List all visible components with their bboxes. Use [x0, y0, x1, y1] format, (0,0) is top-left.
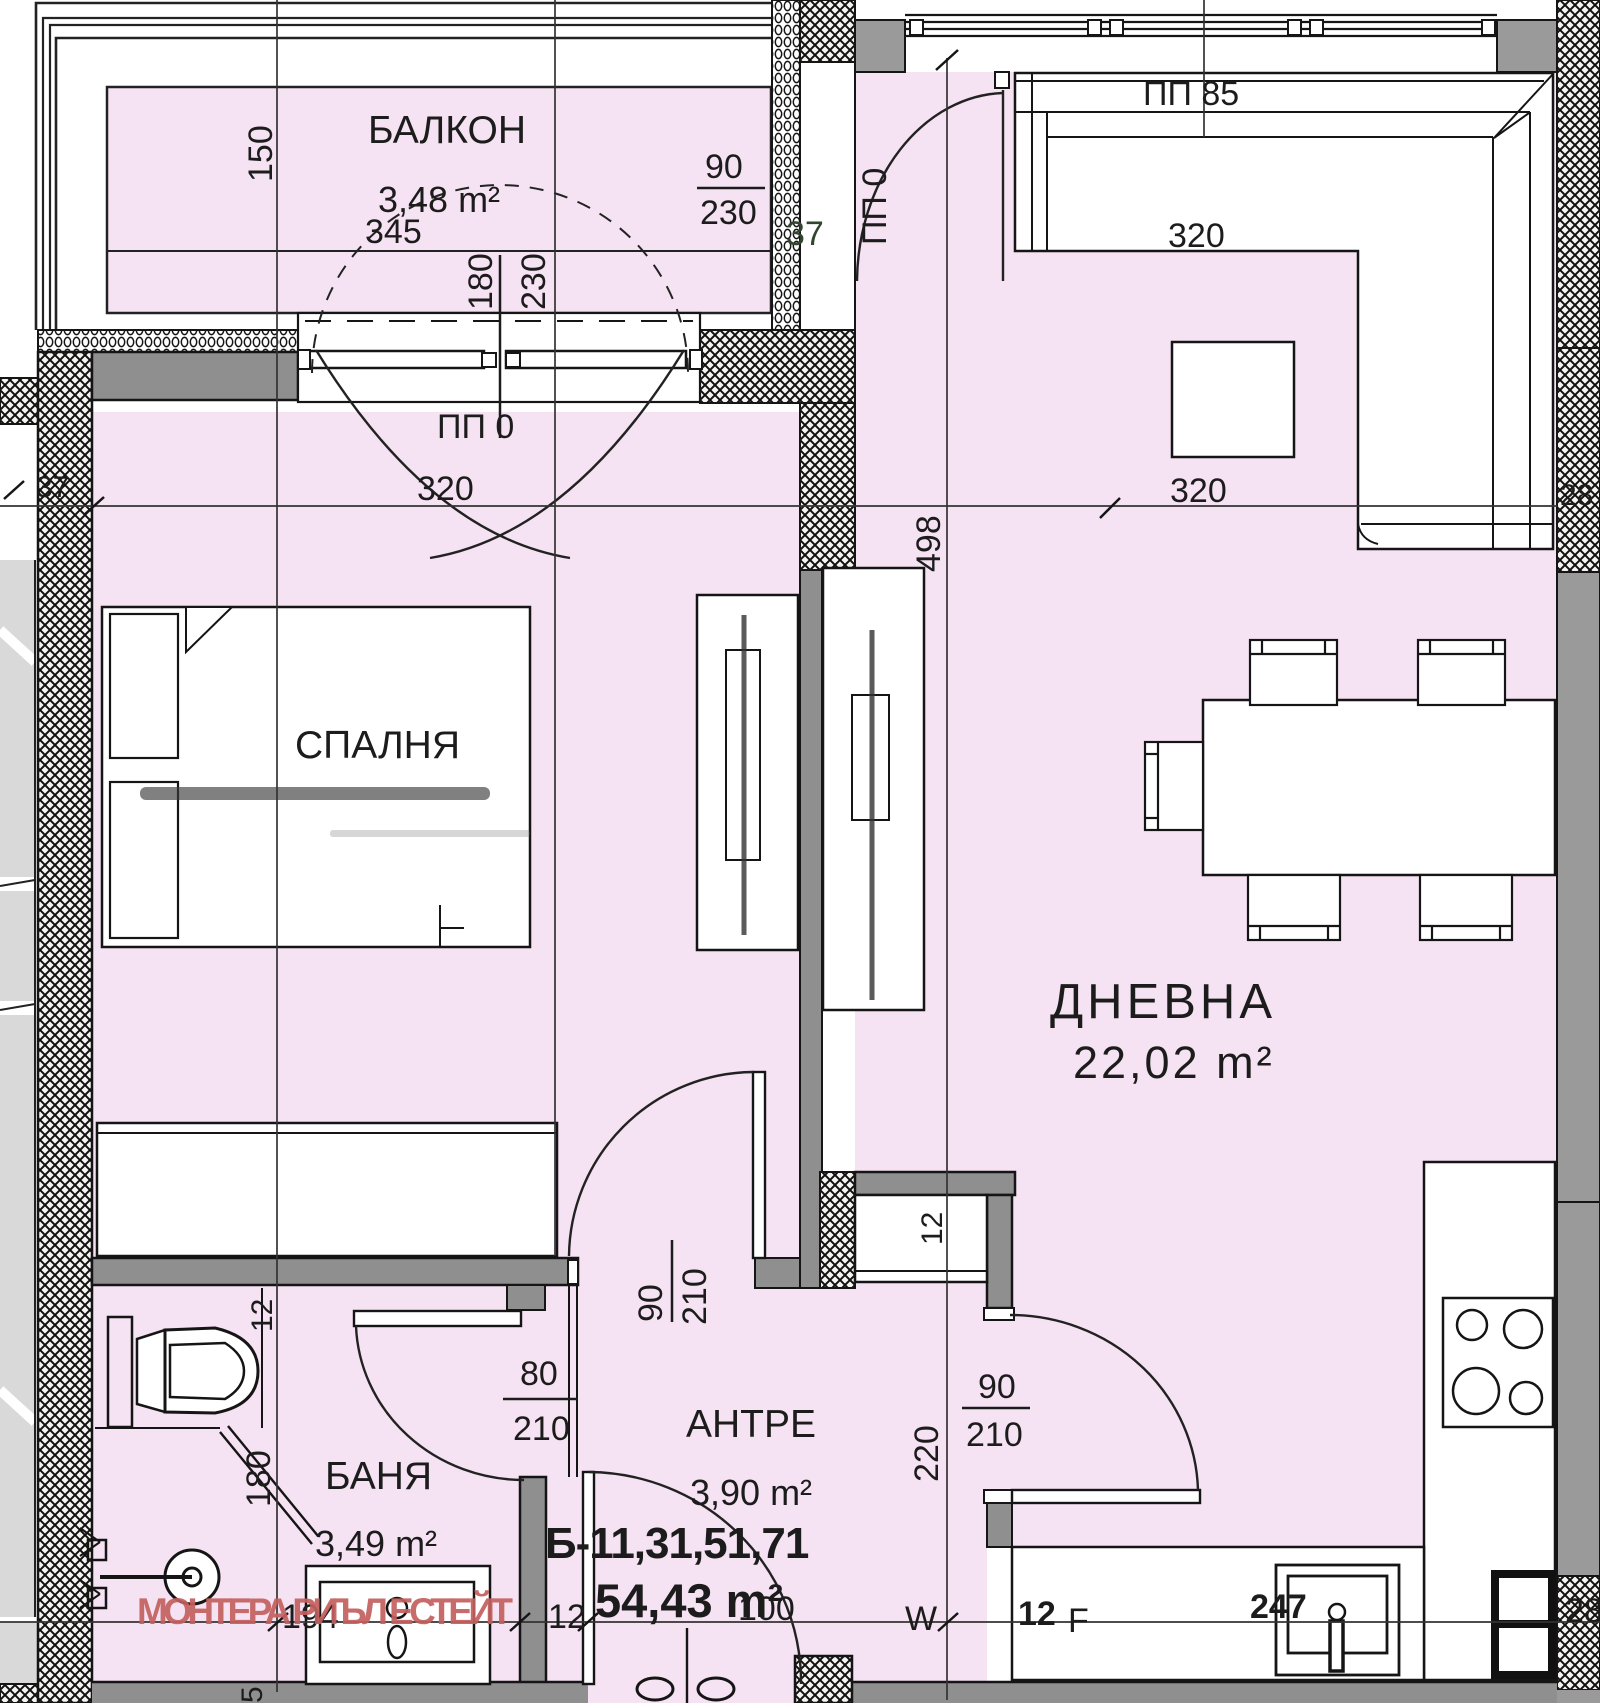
svg-text:90: 90 — [978, 1368, 1016, 1406]
svg-text:220: 220 — [908, 1425, 946, 1482]
svg-text:230: 230 — [700, 194, 757, 232]
svg-text:100: 100 — [738, 1590, 795, 1628]
svg-text:80: 80 — [520, 1355, 558, 1393]
svg-text:ПП 85: ПП 85 — [1143, 75, 1239, 113]
svg-text:210: 210 — [513, 1410, 570, 1448]
svg-text:37: 37 — [36, 471, 69, 504]
svg-text:5: 5 — [236, 1686, 269, 1703]
svg-text:F: F — [1068, 1602, 1089, 1640]
svg-text:28: 28 — [1560, 479, 1593, 512]
svg-text:247: 247 — [1250, 1588, 1307, 1626]
svg-text:12: 12 — [548, 1598, 586, 1636]
svg-text:28: 28 — [1565, 1592, 1600, 1630]
svg-text:12: 12 — [916, 1212, 949, 1245]
svg-text:90: 90 — [632, 1284, 670, 1322]
svg-text:210: 210 — [966, 1416, 1023, 1454]
svg-text:3,90 m²: 3,90 m² — [690, 1472, 812, 1513]
svg-text:320: 320 — [417, 470, 474, 508]
svg-text:180: 180 — [462, 253, 500, 310]
svg-text:W: W — [905, 1600, 937, 1638]
svg-text:ДНЕВНА: ДНЕВНА — [1050, 975, 1276, 1029]
svg-text:37: 37 — [786, 215, 824, 253]
svg-text:3,49 m²: 3,49 m² — [315, 1523, 437, 1564]
svg-text:БАЛКОН: БАЛКОН — [368, 109, 526, 152]
svg-text:210: 210 — [676, 1268, 714, 1325]
svg-text:БАНЯ: БАНЯ — [325, 1455, 432, 1498]
svg-text:12: 12 — [1018, 1595, 1056, 1633]
svg-text:ПП 0: ПП 0 — [856, 168, 894, 245]
svg-text:320: 320 — [1170, 472, 1227, 510]
svg-text:МОНТЕРА РИЪЛ ЕСТЕЙТ: МОНТЕРА РИЪЛ ЕСТЕЙТ — [137, 1590, 513, 1632]
svg-text:150: 150 — [242, 125, 280, 182]
svg-text:320: 320 — [1168, 217, 1225, 255]
svg-text:12: 12 — [246, 1299, 279, 1332]
svg-text:498: 498 — [910, 515, 948, 572]
svg-text:90: 90 — [705, 148, 743, 186]
svg-text:Б-11,31,51,71: Б-11,31,51,71 — [545, 1519, 809, 1568]
svg-text:ПП 0: ПП 0 — [437, 408, 514, 446]
svg-text:22,02 m²: 22,02 m² — [1073, 1037, 1275, 1088]
svg-text:СПАЛНЯ: СПАЛНЯ — [295, 724, 460, 767]
svg-text:АНТРЕ: АНТРЕ — [686, 1403, 816, 1446]
svg-text:230: 230 — [515, 253, 553, 310]
svg-text:345: 345 — [365, 213, 422, 251]
svg-text:180: 180 — [240, 1450, 278, 1507]
